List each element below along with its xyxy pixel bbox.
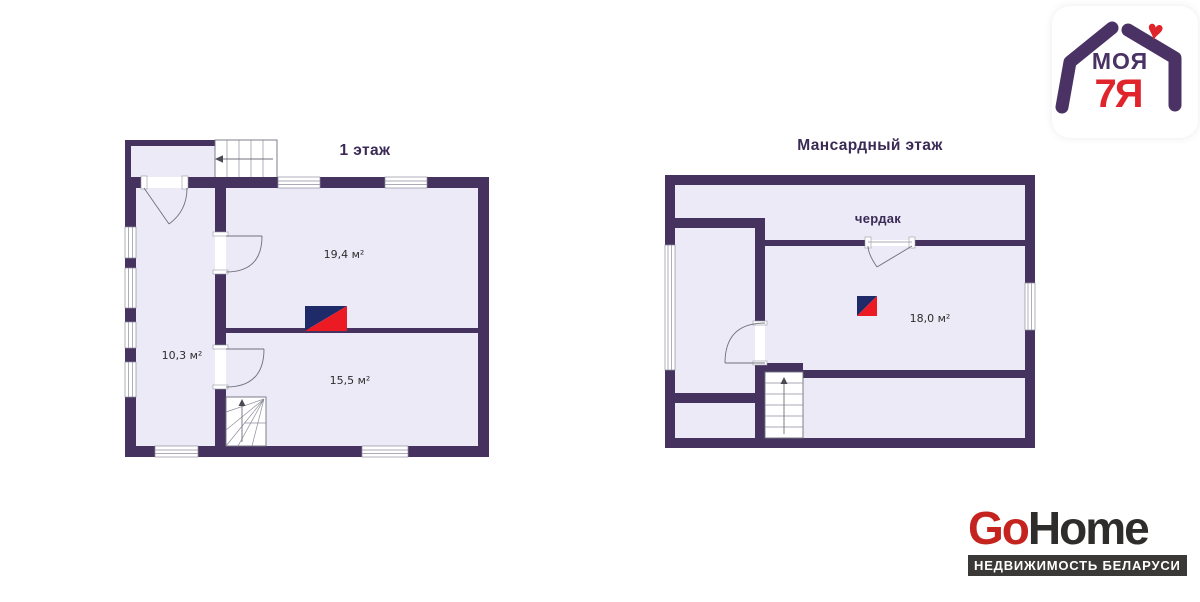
attic-staircase [765,372,803,438]
winder-staircase [226,397,266,446]
moya7ya-logo-drawing: ♥ МОЯ 7Я [1052,6,1198,138]
first-floor-plan: 1 этаж [125,140,489,457]
attic-floor-title: Мансардный этаж [797,137,943,154]
room-area-label: 18,0 м² [910,312,951,325]
heart-icon: ♥ [1144,14,1166,47]
7ya-text: 7Я [1095,72,1142,116]
entry-staircase [215,140,277,178]
north-indicator [305,306,347,331]
room-area-label: 10,3 м² [162,349,203,362]
gohome-wordmark: GoHome [968,505,1187,551]
first-floor-title: 1 этаж [340,142,391,159]
north-indicator [857,296,877,316]
gohome-home-text: Home [1028,502,1148,554]
floorplan-canvas: 1 этаж [0,0,1200,597]
attic-floor-fill [665,175,1035,448]
moya7ya-logo: ♥ МОЯ 7Я [1052,6,1198,138]
moya-text: МОЯ [1092,48,1148,74]
attic-floor-plan: Мансардный этаж [665,137,1035,448]
room-area-label: 19,4 м² [324,248,365,261]
attic-space-label: чердак [855,211,901,226]
room-area-label: 15,5 м² [330,374,371,387]
gohome-tagline: НЕДВИЖИМОСТЬ БЕЛАРУСИ [968,555,1187,576]
gohome-logo: GoHome НЕДВИЖИМОСТЬ БЕЛАРУСИ [968,505,1187,576]
gohome-go-text: Go [968,502,1028,554]
